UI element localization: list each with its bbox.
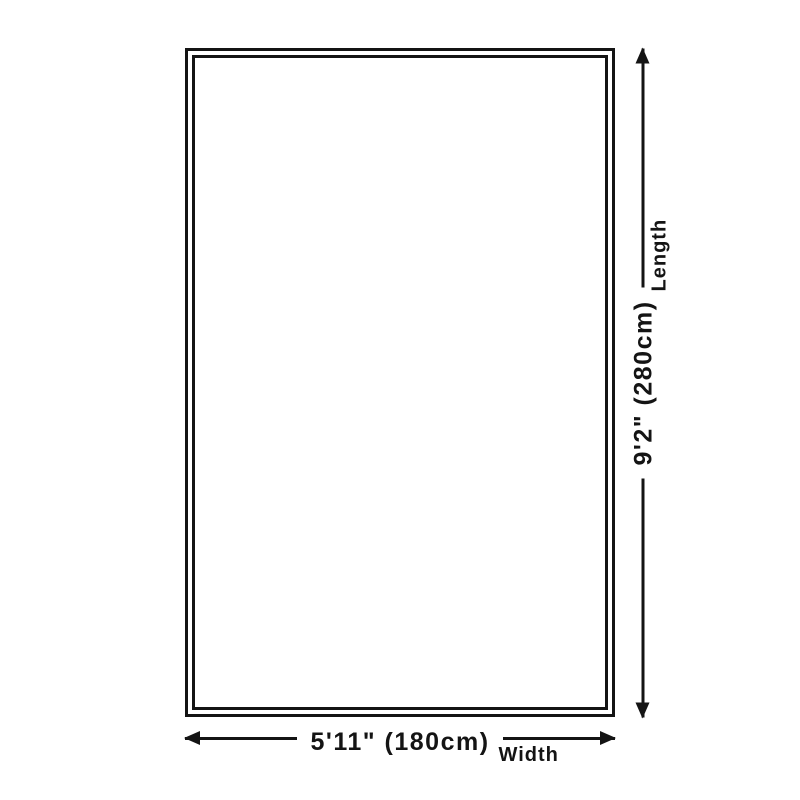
length-value: 9'2" (280cm) — [631, 287, 656, 478]
rug-dimension-diagram: 5'11" (180cm) Width 9'2" (280cm) Length — [0, 0, 800, 800]
arrowhead-right-icon — [600, 731, 616, 745]
length-label: Length — [649, 219, 669, 292]
arrowhead-down-icon — [636, 703, 650, 719]
length-arrow-line-bottom — [641, 479, 644, 718]
width-arrow-line-left — [185, 737, 297, 740]
length-dimension: 9'2" (280cm) Length — [621, 49, 665, 718]
width-dimension: 5'11" (180cm) Width — [185, 716, 615, 760]
width-label: Width — [499, 745, 559, 765]
rug-outline-outer — [185, 48, 615, 717]
arrowhead-left-icon — [184, 731, 200, 745]
rug-outline-inner — [192, 55, 608, 710]
length-arrow-line-top: Length — [641, 48, 644, 287]
width-value: 5'11" (180cm) — [297, 730, 502, 755]
arrowhead-up-icon — [636, 47, 650, 63]
width-arrow-line-right: Width — [503, 737, 615, 740]
